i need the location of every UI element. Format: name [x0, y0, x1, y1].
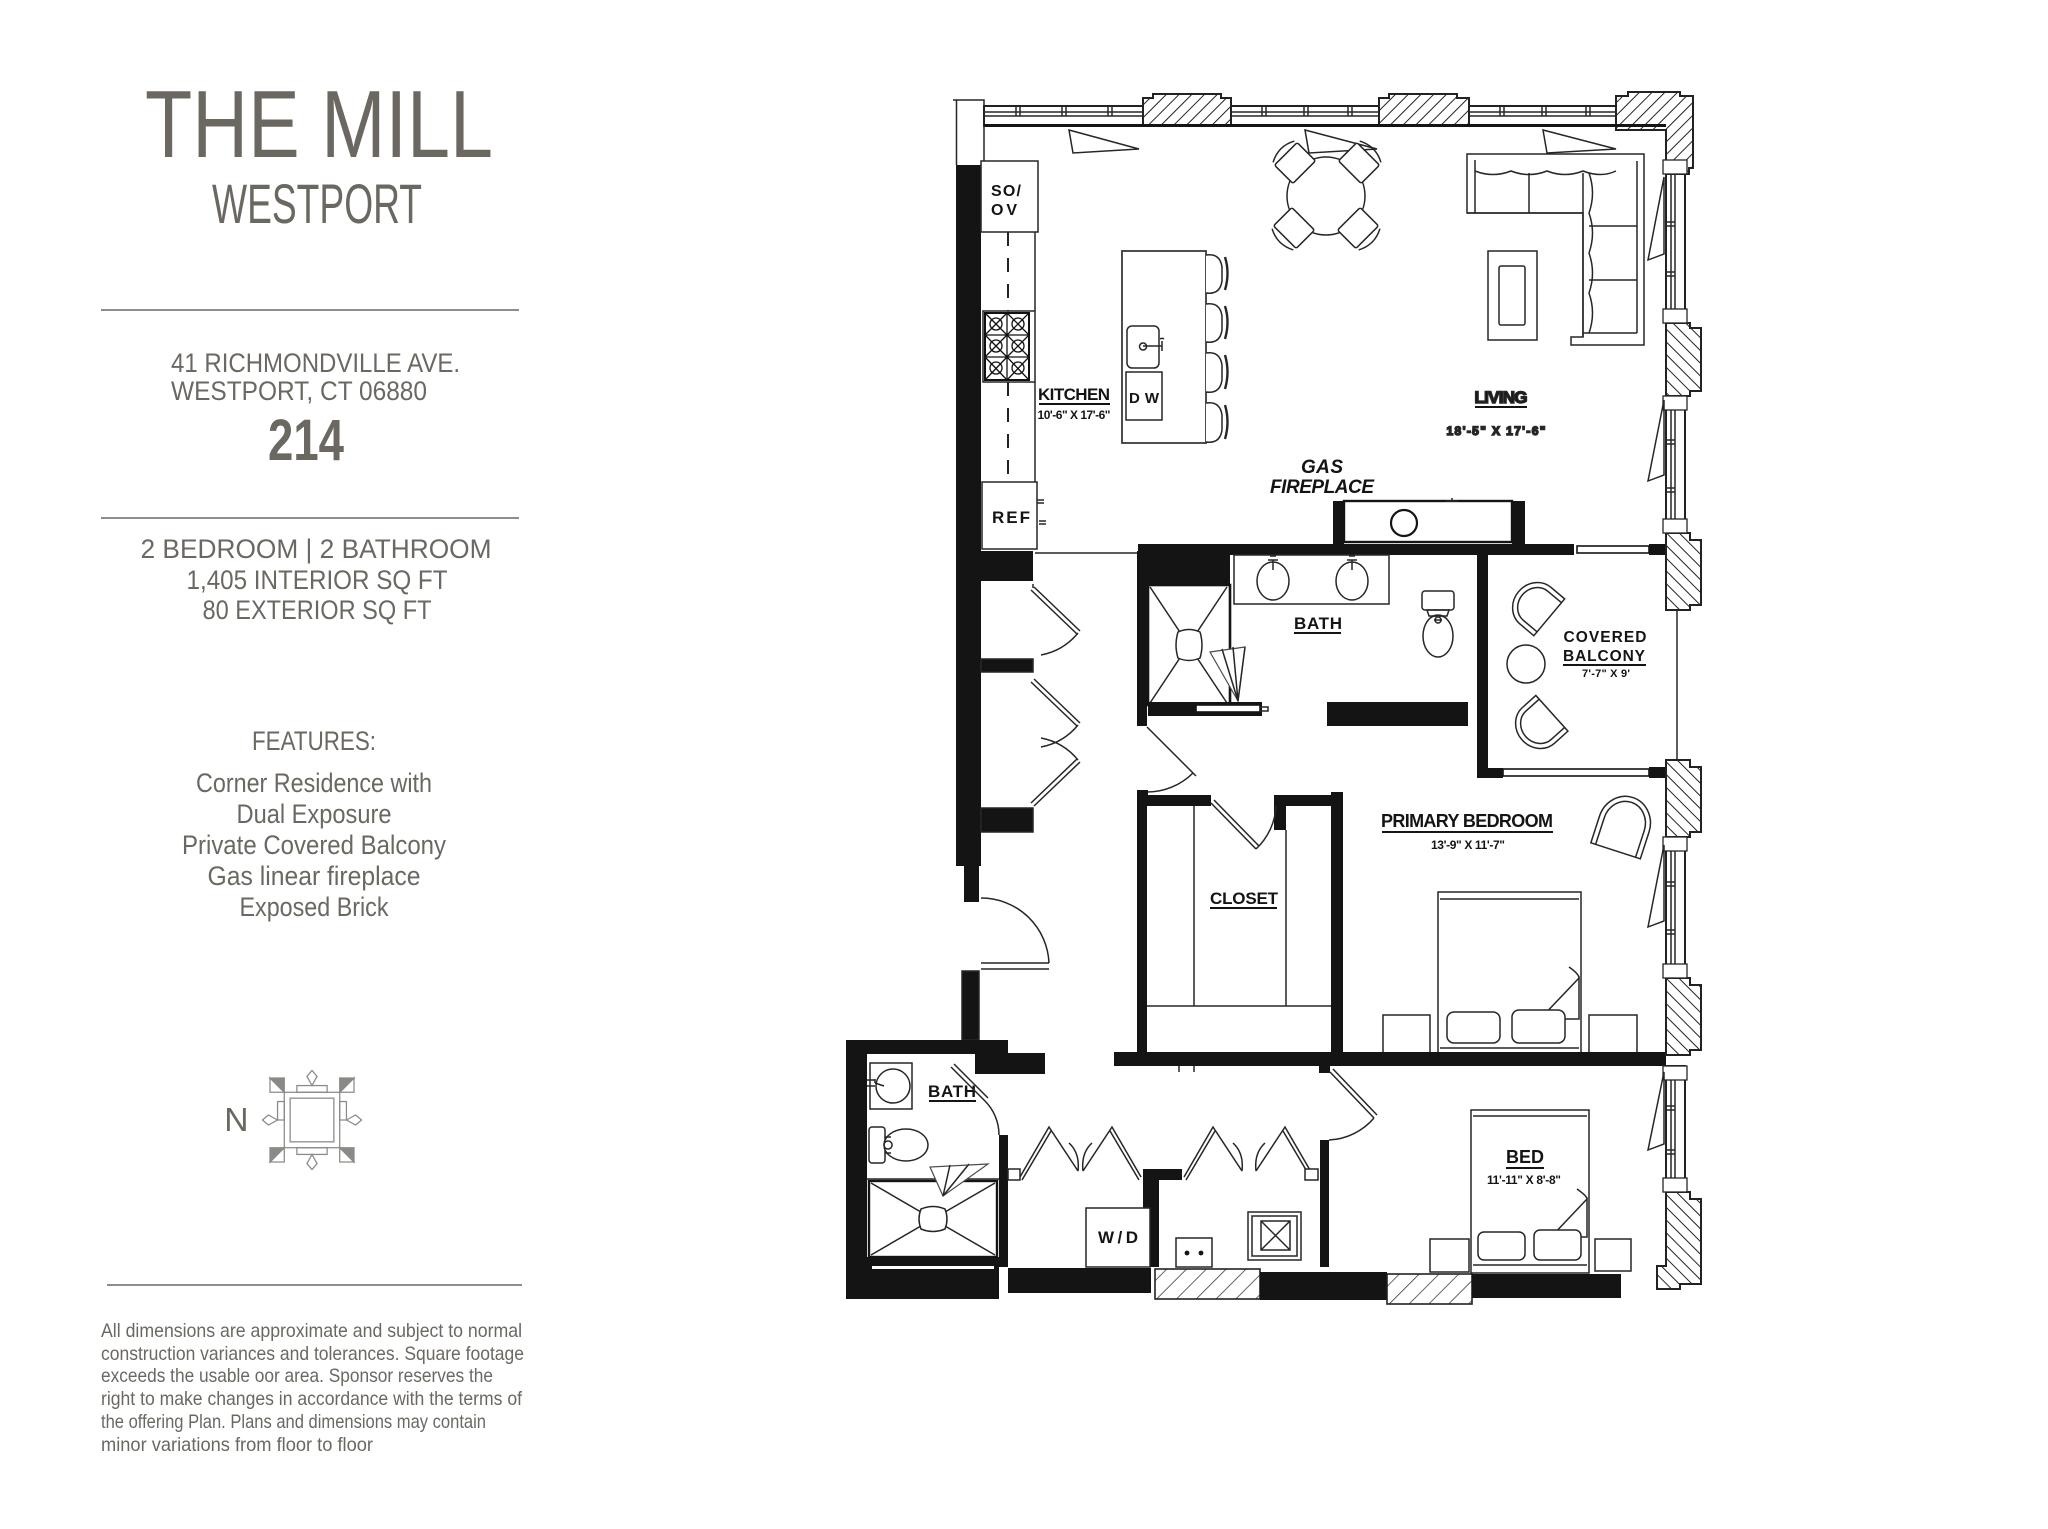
svg-text:13'-9" X 11'-7": 13'-9" X 11'-7" — [1431, 838, 1505, 852]
svg-text:BATH: BATH — [1294, 614, 1342, 633]
svg-text:PRIMARY BEDROOM: PRIMARY BEDROOM — [1381, 811, 1553, 831]
svg-text:Corner Residence with: Corner Residence with — [196, 768, 432, 798]
svg-text:THE MILL: THE MILL — [145, 71, 493, 178]
svg-text:FIREPLACE: FIREPLACE — [1270, 477, 1375, 498]
svg-text:214: 214 — [268, 408, 344, 473]
svg-text:BALCONY: BALCONY — [1563, 648, 1646, 665]
svg-text:Private Covered Balcony: Private Covered Balcony — [182, 830, 446, 860]
svg-text:11'-11" X 8'-8": 11'-11" X 8'-8" — [1487, 1173, 1561, 1187]
svg-text:minor variations from floor t: minor variations from floor to floor — [101, 1434, 373, 1456]
svg-text:1,405 INTERIOR SQ FT: 1,405 INTERIOR SQ FT — [187, 565, 448, 595]
svg-text:Dual Exposure: Dual Exposure — [237, 799, 392, 829]
svg-text:7'-7" X 9': 7'-7" X 9' — [1582, 668, 1630, 680]
svg-text:BED: BED — [1506, 1147, 1544, 1167]
svg-text:KITCHEN: KITCHEN — [1038, 385, 1110, 404]
svg-text:WESTPORT, CT 06880: WESTPORT, CT 06880 — [171, 376, 427, 406]
svg-text:18'-5" X 17'-6": 18'-5" X 17'-6" — [1447, 424, 1546, 438]
svg-text:the offering Plan. Plans and d: the offering Plan. Plans and dimensions … — [101, 1411, 486, 1433]
svg-text:W/D: W/D — [1098, 1228, 1138, 1247]
svg-text:N: N — [224, 1102, 248, 1139]
svg-text:10'-6" X 17'-6": 10'-6" X 17'-6" — [1038, 408, 1111, 422]
svg-text:80 EXTERIOR SQ FT: 80 EXTERIOR SQ FT — [203, 595, 432, 625]
svg-text:DW: DW — [1129, 390, 1160, 407]
svg-text:CLOSET: CLOSET — [1210, 889, 1279, 908]
svg-text:2 BEDROOM | 2 BATHROOM: 2 BEDROOM | 2 BATHROOM — [141, 534, 492, 564]
svg-text:41 RICHMONDVILLE AVE.: 41 RICHMONDVILLE AVE. — [171, 348, 460, 378]
svg-text:All dimensions are approximate: All dimensions are approximate and subje… — [101, 1320, 522, 1342]
svg-text:construction variances and tol: construction variances and tolerances. S… — [101, 1343, 524, 1365]
svg-text:Exposed Brick: Exposed Brick — [240, 892, 389, 922]
svg-text:right to make changes in accor: right to make changes in accordance with… — [101, 1388, 523, 1410]
svg-text:SO/: SO/ — [991, 183, 1022, 200]
svg-text:GAS: GAS — [1301, 457, 1343, 478]
svg-text:REF: REF — [992, 508, 1030, 527]
svg-text:Gas linear fireplace: Gas linear fireplace — [208, 861, 421, 891]
svg-text:LIVING: LIVING — [1475, 388, 1528, 407]
svg-text:FEATURES:: FEATURES: — [252, 726, 376, 756]
svg-text:COVERED: COVERED — [1564, 629, 1647, 646]
svg-text:exceeds the usable oor area.: exceeds the usable oor area. Sponsor res… — [101, 1365, 493, 1387]
svg-text:WESTPORT: WESTPORT — [212, 172, 422, 235]
